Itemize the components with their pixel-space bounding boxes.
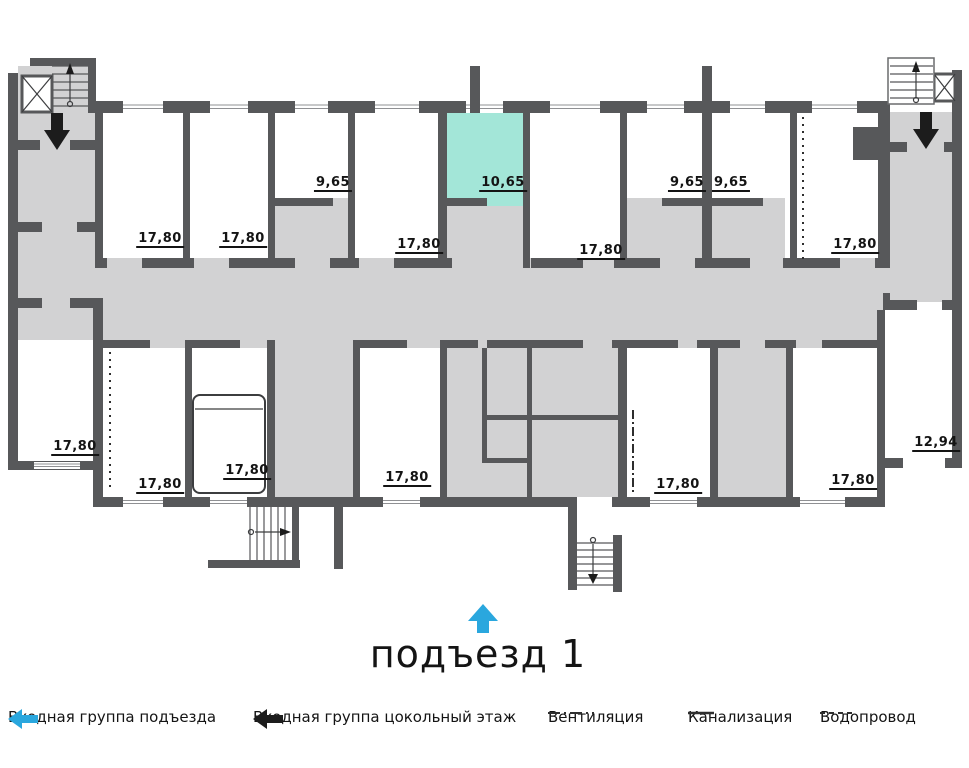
- legend-item-entrance-main: Входная группа подъезда: [8, 708, 216, 726]
- highlight-room[interactable]: [447, 113, 523, 206]
- solid-line-icon: [688, 708, 714, 718]
- room-area-label: 17,80: [383, 471, 431, 487]
- room-area-label: 9,65: [668, 176, 706, 192]
- legend-item-water: Водопровод: [820, 708, 916, 726]
- room-area-label: 17,80: [51, 440, 99, 456]
- room-area-label-highlighted: 10,65: [479, 176, 527, 192]
- elevator-icon: [22, 76, 52, 112]
- floor-plan-drawing: [0, 0, 969, 600]
- basement-exterior-staircase-icon: [249, 507, 292, 560]
- room-area-label: 9,65: [314, 176, 352, 192]
- elevator-icon: [934, 74, 955, 101]
- room-area-label: 17,80: [136, 478, 184, 494]
- room-area-label: 9,65: [712, 176, 750, 192]
- room-area-label: 17,80: [223, 464, 271, 480]
- room-area-label: 17,80: [219, 232, 267, 248]
- room-area-label: 17,80: [654, 478, 702, 494]
- arrow-left-black-icon: [253, 708, 283, 730]
- arrow-left-cyan-icon: [8, 708, 38, 730]
- room-area-label: 17,80: [577, 244, 625, 260]
- legend-item-ventilation: Вентиляция: [548, 708, 643, 726]
- plan-title: подъезд 1: [370, 632, 586, 676]
- entrance-up-arrow-icon: [467, 602, 499, 634]
- dash-dot-line-icon: [548, 708, 594, 718]
- floor-plan-page: 17,80 17,80 9,65 17,80 10,65 17,80 9,65 …: [0, 0, 969, 768]
- room-area-label: 17,80: [395, 238, 443, 254]
- entrance-staircase-icon: [577, 538, 613, 586]
- room-area-label: 17,80: [831, 238, 879, 254]
- legend-label: Входная группа цокольный этаж: [253, 708, 516, 726]
- room-area-label: 12,94: [912, 436, 960, 452]
- legend-label: Входная группа подъезда: [8, 708, 216, 726]
- dashed-line-icon: [820, 708, 854, 718]
- room-area-label: 17,80: [136, 232, 184, 248]
- room-area-label: 17,80: [829, 474, 877, 490]
- staircase-icon: [888, 58, 934, 104]
- legend-item-sewerage: Канализация: [688, 708, 792, 726]
- legend-item-entrance-basement: Входная группа цокольный этаж: [253, 708, 516, 726]
